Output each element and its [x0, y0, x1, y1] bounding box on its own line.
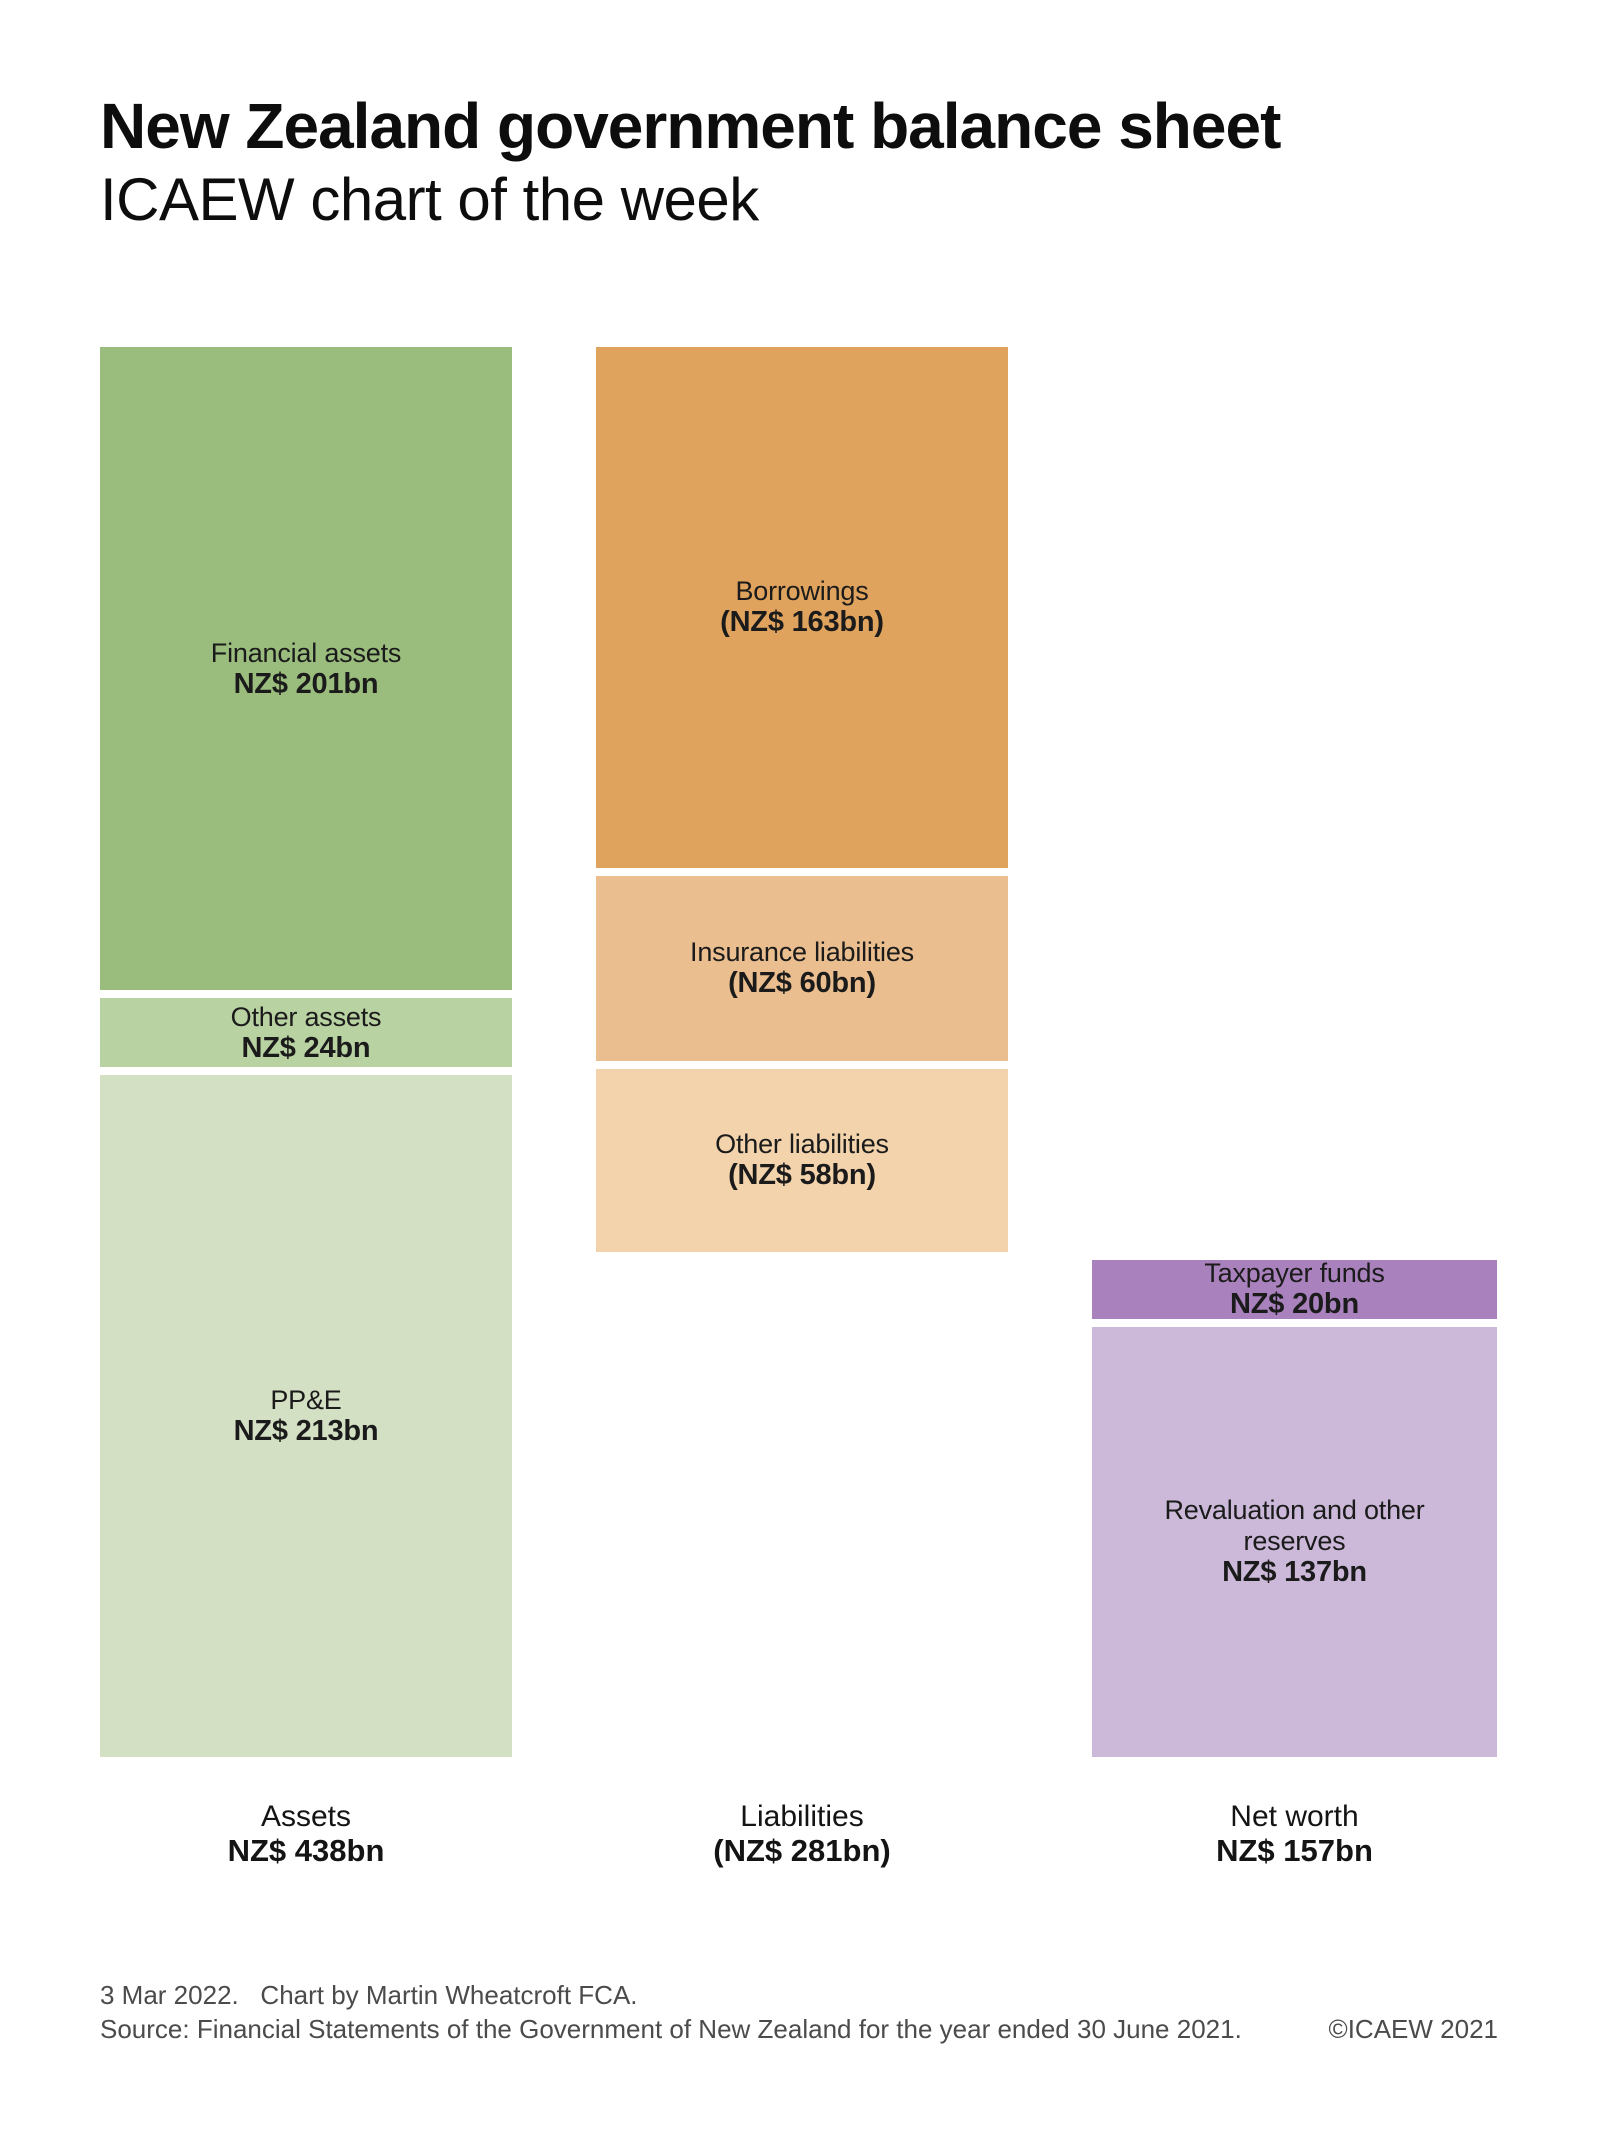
bar-segment-label: Insurance liabilities(NZ$ 60bn)	[690, 937, 914, 999]
segment-name: Financial assets	[211, 638, 401, 669]
segment-name: Other liabilities	[715, 1129, 889, 1160]
bar-segment-label: Borrowings(NZ$ 163bn)	[720, 576, 884, 638]
bar-segment-label: Other assetsNZ$ 24bn	[231, 1002, 382, 1064]
segment-value: NZ$ 20bn	[1204, 1289, 1384, 1320]
footer-source: Source: Financial Statements of the Gove…	[100, 2012, 1242, 2046]
segment-name: Insurance liabilities	[690, 937, 914, 968]
segment-value: NZ$ 24bn	[231, 1033, 382, 1064]
bar-segment-borrowings: Borrowings(NZ$ 163bn)	[596, 347, 1008, 868]
axis-name: Assets	[100, 1800, 512, 1834]
axis-name: Liabilities	[596, 1800, 1008, 1834]
bar-segment-label: Financial assetsNZ$ 201bn	[211, 638, 401, 700]
bar-segment-taxpayer-funds: Taxpayer fundsNZ$ 20bn	[1092, 1260, 1497, 1319]
footer-copyright: ©ICAEW 2021	[1329, 2012, 1498, 2046]
segment-value: NZ$ 201bn	[211, 669, 401, 700]
balance-sheet-chart: Financial assetsNZ$ 201bnOther assetsNZ$…	[0, 0, 1600, 2133]
bar-segment-pp-e: PP&ENZ$ 213bn	[100, 1075, 512, 1757]
segment-name: Borrowings	[720, 576, 884, 607]
bar-segment-financial-assets: Financial assetsNZ$ 201bn	[100, 347, 512, 990]
bar-segment-label: Revaluation and other reservesNZ$ 137bn	[1140, 1495, 1450, 1588]
segment-value: NZ$ 137bn	[1140, 1557, 1450, 1588]
bar-segment-label: Taxpayer fundsNZ$ 20bn	[1204, 1258, 1384, 1320]
segment-value: (NZ$ 58bn)	[715, 1160, 889, 1191]
axis-total: (NZ$ 281bn)	[596, 1834, 1008, 1868]
segment-name: Revaluation and other reserves	[1140, 1495, 1450, 1557]
segment-value: NZ$ 213bn	[234, 1416, 379, 1447]
segment-value: (NZ$ 60bn)	[690, 968, 914, 999]
bar-segment-label: Other liabilities(NZ$ 58bn)	[715, 1129, 889, 1191]
bar-segment-other-assets: Other assetsNZ$ 24bn	[100, 998, 512, 1067]
segment-name: PP&E	[234, 1385, 379, 1416]
axis-total: NZ$ 438bn	[100, 1834, 512, 1868]
bar-segment-revaluation-and-other-reserves: Revaluation and other reservesNZ$ 137bn	[1092, 1327, 1497, 1757]
footer-date-author: 3 Mar 2022. Chart by Martin Wheatcroft F…	[100, 1978, 1498, 2012]
axis-label-liabilities: Liabilities (NZ$ 281bn)	[596, 1800, 1008, 1868]
bar-segment-insurance-liabilities: Insurance liabilities(NZ$ 60bn)	[596, 876, 1008, 1061]
axis-label-net-worth: Net worth NZ$ 157bn	[1092, 1800, 1497, 1868]
segment-name: Taxpayer funds	[1204, 1258, 1384, 1289]
axis-label-assets: Assets NZ$ 438bn	[100, 1800, 512, 1868]
segment-value: (NZ$ 163bn)	[720, 607, 884, 638]
segment-name: Other assets	[231, 1002, 382, 1033]
bar-segment-other-liabilities: Other liabilities(NZ$ 58bn)	[596, 1069, 1008, 1252]
axis-total: NZ$ 157bn	[1092, 1834, 1497, 1868]
chart-footer: 3 Mar 2022. Chart by Martin Wheatcroft F…	[100, 1978, 1498, 2046]
axis-name: Net worth	[1092, 1800, 1497, 1834]
bar-segment-label: PP&ENZ$ 213bn	[234, 1385, 379, 1447]
